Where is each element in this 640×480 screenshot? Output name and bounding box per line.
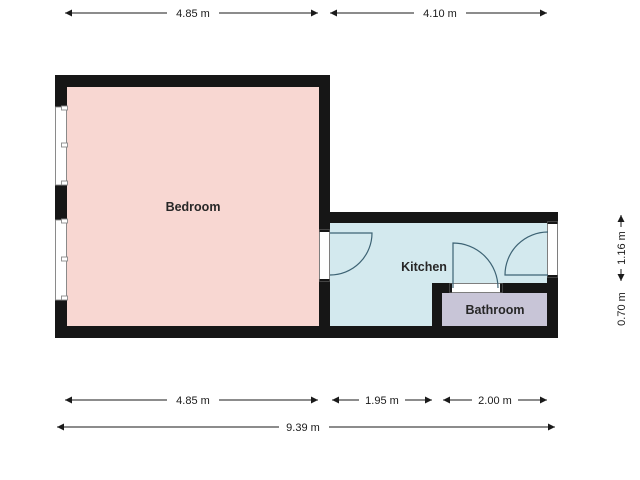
kitchen-label: Kitchen <box>401 260 447 274</box>
dim-bottom-bedroom: 4.85 m <box>65 392 318 408</box>
wall-bottom <box>55 326 558 338</box>
dim-bottom-kitchen: 1.95 m <box>332 392 432 408</box>
dim-top-kitchen-value: 4.10 m <box>423 8 457 20</box>
wall-bathroom-left <box>432 283 442 338</box>
bathroom-label: Bathroom <box>465 303 524 317</box>
wall-kitchen-top <box>319 212 558 223</box>
dim-right-070-value: 0.70 m <box>616 292 628 326</box>
door-frame-entry <box>548 222 558 277</box>
dim-right-070: 0.70 m <box>616 292 628 326</box>
door-frame-bedroom-kitchen <box>320 230 330 281</box>
dim-bottom-bathroom-value: 2.00 m <box>478 395 512 407</box>
dim-bottom-total-value: 9.39 m <box>286 422 320 434</box>
dim-right-116: 1.16 m <box>613 215 629 281</box>
floor-plan-canvas: Bedroom Kitchen Bathroom 4.85 m 4.10 m 1… <box>0 0 640 480</box>
dim-bottom-bathroom: 2.00 m <box>443 392 547 408</box>
dim-bottom-kitchen-value: 1.95 m <box>365 395 399 407</box>
dim-bottom-total: 9.39 m <box>57 419 555 435</box>
wall-top <box>55 75 330 87</box>
window-1 <box>56 106 68 185</box>
floor-plan-drawing: Bedroom Kitchen Bathroom 4.85 m 4.10 m 1… <box>0 0 640 480</box>
dim-right-116-value: 1.16 m <box>616 231 628 265</box>
dim-top-kitchen: 4.10 m <box>330 5 547 21</box>
window-2 <box>56 219 68 300</box>
door-frame-bathroom <box>450 284 502 293</box>
bedroom-label: Bedroom <box>166 200 221 214</box>
wall-bedroom-right <box>319 75 330 338</box>
dim-top-bedroom: 4.85 m <box>65 5 318 21</box>
dim-bottom-bedroom-value: 4.85 m <box>176 395 210 407</box>
dim-top-bedroom-value: 4.85 m <box>176 8 210 20</box>
